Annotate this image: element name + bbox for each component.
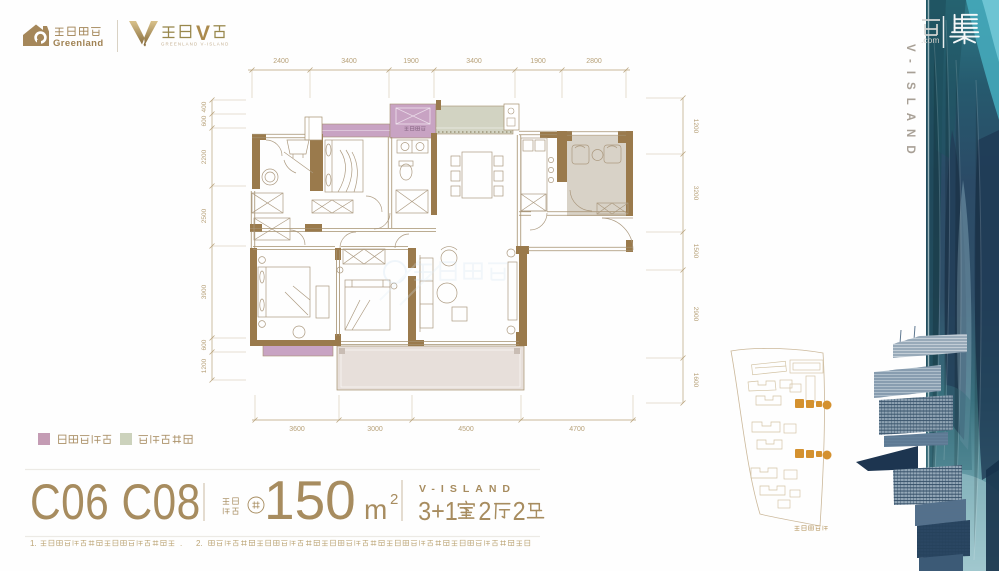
svg-text:4700: 4700 (569, 426, 585, 433)
svg-text:3400: 3400 (466, 58, 482, 65)
svg-text:1900: 1900 (403, 58, 419, 65)
svg-text:2800: 2800 (586, 58, 602, 65)
svg-text:2: 2 (513, 498, 526, 526)
svg-text:3200: 3200 (692, 186, 699, 201)
svg-text:V-ISLAND: V-ISLAND (904, 44, 916, 162)
svg-text:2: 2 (390, 491, 398, 508)
svg-text:3400: 3400 (341, 58, 357, 65)
svg-text:.com: .com (921, 35, 939, 45)
svg-text:4500: 4500 (458, 426, 474, 433)
svg-text:V-ISLAND: V-ISLAND (419, 483, 516, 495)
svg-text:2.: 2. (196, 539, 203, 548)
svg-text:1200: 1200 (692, 119, 699, 134)
svg-text:1900: 1900 (530, 58, 546, 65)
svg-text:1500: 1500 (692, 244, 699, 259)
svg-text:GREENLAND V-ISLAND: GREENLAND V-ISLAND (161, 42, 229, 47)
svg-text:1200: 1200 (201, 358, 208, 373)
svg-text:2200: 2200 (201, 149, 208, 164)
svg-text:.: . (180, 539, 182, 548)
svg-text:3000: 3000 (367, 426, 383, 433)
svg-text:150: 150 (264, 469, 356, 531)
svg-text:1600: 1600 (692, 373, 699, 388)
svg-text:m: m (364, 494, 387, 525)
svg-text:600: 600 (201, 339, 208, 350)
svg-text:400: 400 (201, 101, 208, 112)
svg-text:2900: 2900 (692, 307, 699, 322)
svg-text:3+1: 3+1 (418, 498, 458, 526)
svg-text:600: 600 (201, 115, 208, 126)
svg-text:2400: 2400 (273, 58, 289, 65)
svg-text:Greenland: Greenland (53, 38, 104, 49)
svg-text:C06 C08: C06 C08 (30, 474, 201, 530)
svg-text:3900: 3900 (201, 284, 208, 299)
svg-text:2: 2 (478, 498, 491, 526)
svg-text:2500: 2500 (201, 208, 208, 223)
svg-text:1.: 1. (30, 539, 37, 548)
svg-text:3600: 3600 (289, 426, 305, 433)
